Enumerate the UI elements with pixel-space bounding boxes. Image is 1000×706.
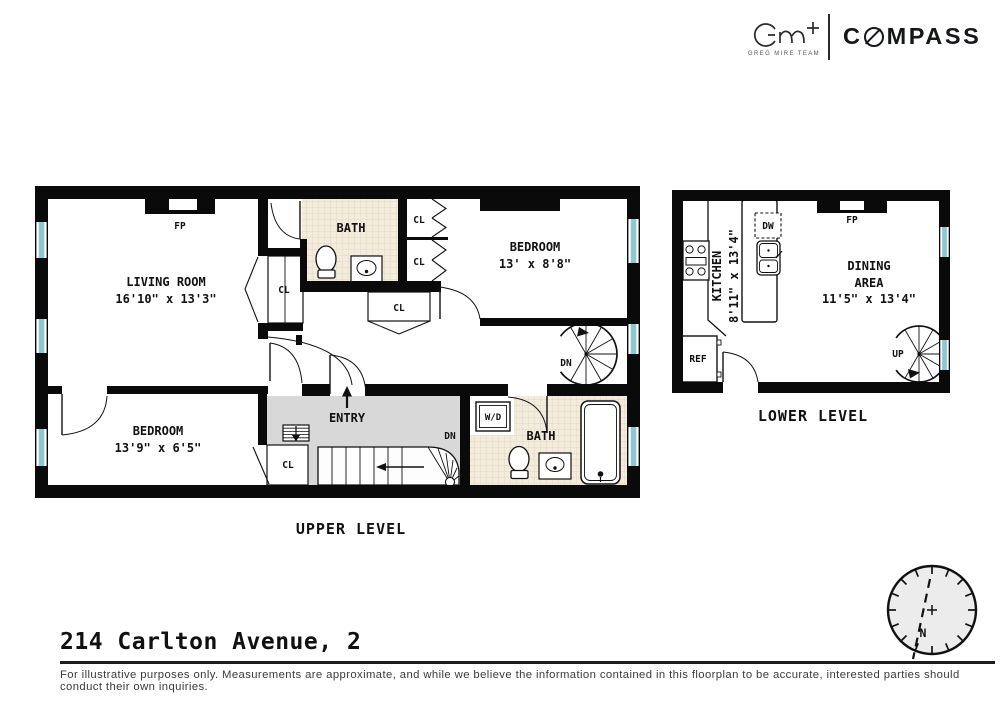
door-arcs	[723, 352, 758, 382]
toilet-icon	[316, 246, 336, 278]
slashed-o-slash	[865, 29, 881, 45]
upper-level-title: UPPER LEVEL	[45, 520, 657, 538]
window	[939, 340, 950, 370]
floorplan-page: GREG MIRE TEAM C MPASS	[0, 0, 1000, 706]
spiral-down-label: DN	[560, 358, 572, 369]
toilet-icon	[509, 447, 529, 479]
bedroom-bottom-label: BEDROOM	[133, 424, 184, 438]
dining-area-dims: 11'5" x 13'4"	[822, 292, 916, 306]
living-room-dims: 16'10" x 13'3"	[115, 292, 216, 306]
compass-rose-icon: N	[878, 551, 990, 669]
team-logo-gm-monogram-icon	[748, 15, 824, 51]
kitchen-label: KITCHEN	[710, 251, 724, 302]
washer-dryer-label: W/D	[485, 413, 502, 423]
closet-label: CL	[413, 215, 425, 226]
sink-icon	[539, 453, 571, 479]
window	[627, 324, 640, 354]
closet-label: CL	[413, 257, 425, 268]
lower-level-title: LOWER LEVEL	[668, 407, 958, 425]
upper-level-floorplan: FP BATH CL CL BEDROOM 13' x 8'8" LIVING …	[30, 183, 642, 501]
bath-top-floor	[302, 199, 398, 283]
bath-top-label: BATH	[337, 221, 366, 235]
lower-level-floorplan: FP DW REF KITCHEN 8'11" x 13'4" DINING A…	[668, 184, 958, 396]
window	[627, 427, 640, 466]
main-staircase-icon	[318, 447, 459, 487]
logo-divider	[828, 14, 830, 60]
bedroom-bottom-closet	[253, 445, 308, 485]
bedroom-bottom-dims: 13'9" x 6'5"	[115, 441, 202, 455]
living-room-door	[268, 337, 352, 385]
fireplace-label: FP	[174, 221, 186, 232]
bathtub-icon	[581, 401, 620, 484]
spiral-staircase-icon	[561, 323, 617, 385]
bedroom-top-dims: 13' x 8'8"	[499, 257, 571, 271]
window	[35, 319, 48, 353]
stove-icon	[683, 241, 709, 280]
closet-label: CL	[282, 460, 294, 471]
stair-down-label: DN	[444, 431, 456, 442]
north-label: N	[920, 626, 927, 640]
spiral-up-label: UP	[892, 349, 904, 360]
entry-steps-icon	[283, 425, 309, 442]
dishwasher-label: DW	[762, 221, 774, 232]
footer-divider	[60, 661, 995, 664]
bedroom-top-label: BEDROOM	[510, 240, 561, 254]
window	[35, 222, 48, 258]
closet-label: CL	[278, 285, 290, 296]
compass-wordmark-mpass: MPASS	[887, 23, 982, 50]
dining-area-label-2: AREA	[855, 276, 885, 290]
compass-wordmark-c: C	[843, 23, 863, 50]
team-name: GREG MIRE TEAM	[740, 51, 828, 57]
closet-label: CL	[393, 303, 405, 314]
dining-area-label-1: DINING	[847, 259, 890, 273]
compass-wordmark: C MPASS	[843, 23, 981, 50]
entry-label: ENTRY	[329, 411, 366, 425]
page-title-address: 214 Carlton Avenue, 2	[60, 629, 361, 655]
refrigerator-label: REF	[689, 354, 706, 365]
fireplace-label: FP	[846, 215, 858, 226]
window	[939, 227, 950, 257]
window	[627, 219, 640, 263]
living-room-closet	[245, 256, 303, 323]
bath-bottom-label: BATH	[527, 429, 556, 443]
living-room-label: LIVING ROOM	[126, 275, 205, 289]
window	[35, 429, 48, 466]
slashed-o-icon	[864, 27, 884, 47]
kitchen-dims: 8'11" x 13'4"	[727, 229, 741, 323]
kitchen-sink-icon	[757, 241, 782, 275]
disclaimer-text: For illustrative purposes only. Measurem…	[60, 669, 995, 693]
sink-icon	[351, 256, 382, 282]
